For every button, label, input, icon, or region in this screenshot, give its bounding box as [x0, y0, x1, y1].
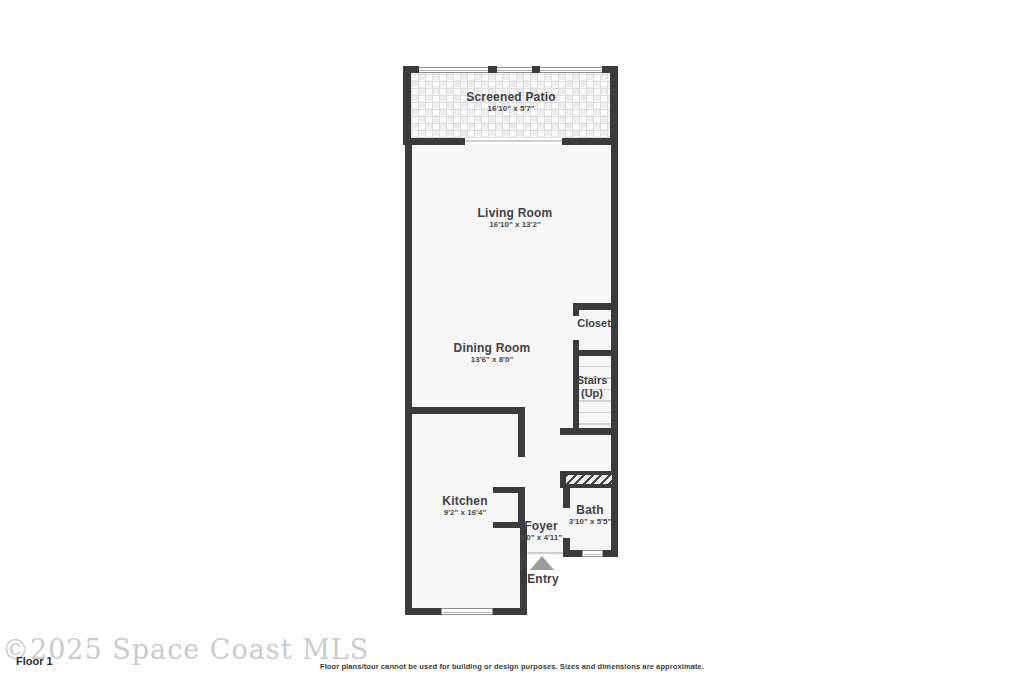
stairs-direction: (Up)	[577, 387, 608, 400]
entry-arrow-icon	[530, 556, 554, 570]
wall-stairs-bottom	[560, 428, 618, 435]
room-name: Closet	[577, 317, 611, 330]
room-name: Living Room	[478, 206, 553, 220]
wall-unit-left	[405, 138, 412, 615]
wall-closet-left-upper	[573, 303, 579, 316]
disclaimer-text: Floor plans/tour cannot be used for buil…	[0, 662, 1024, 671]
room-label-stairs: Stairs (Up)	[577, 374, 608, 400]
wall-kitchen-right-upper	[518, 407, 525, 457]
bath-window	[582, 550, 603, 557]
room-dims: 9'2" x 16'4"	[442, 508, 487, 518]
room-label-kitchen: Kitchen 9'2" x 16'4"	[442, 494, 487, 518]
room-dims: 3'0" x 4'11"	[520, 533, 562, 543]
wall-patio-right	[610, 67, 618, 144]
room-dims: 16'10" x 5'7"	[466, 104, 556, 114]
room-name: Entry	[527, 572, 559, 586]
wall-closet-bottom	[573, 350, 618, 356]
room-name: Foyer	[520, 519, 562, 533]
room-name: Stairs	[577, 374, 608, 387]
patio-window	[411, 67, 610, 73]
room-label-entry: Entry	[527, 572, 559, 586]
room-label-screened-patio: Screened Patio 16'10" x 5'7"	[466, 90, 556, 114]
room-dims: 3'10" x 5'5"	[569, 517, 612, 527]
room-name: Dining Room	[454, 341, 531, 355]
wall-kitchen-top	[405, 407, 525, 414]
wall-patio-bottom-left	[403, 138, 465, 145]
wall-patio-bottom-right	[562, 138, 618, 145]
room-label-bath: Bath 3'10" x 5'5"	[569, 503, 612, 527]
room-label-dining-room: Dining Room 13'6" x 8'0"	[454, 341, 531, 365]
room-name: Kitchen	[442, 494, 487, 508]
room-label-closet: Closet	[577, 317, 611, 330]
wall-patio-post-1	[488, 66, 497, 73]
wall-closet-top	[573, 303, 618, 310]
kitchen-area	[412, 555, 520, 608]
room-label-foyer: Foyer 3'0" x 4'11"	[520, 519, 562, 543]
room-label-living-room: Living Room 16'10" x 13'2"	[478, 206, 553, 230]
room-dims: 16'10" x 13'2"	[478, 220, 553, 230]
room-name: Screened Patio	[466, 90, 556, 104]
kitchen-window	[441, 608, 493, 615]
watermark: ©2025 Space Coast MLS	[2, 634, 369, 665]
bath-top-hatch-pattern	[566, 475, 612, 484]
wall-patio-left	[403, 67, 411, 144]
wall-patio-post-2	[532, 66, 540, 73]
room-dims: 13'6" x 8'0"	[454, 355, 531, 365]
entry-opening	[527, 552, 563, 554]
room-name: Bath	[569, 503, 612, 517]
floorplan: Screened Patio 16'10" x 5'7" Living Room…	[0, 0, 1024, 683]
patio-door-opening	[465, 140, 562, 142]
